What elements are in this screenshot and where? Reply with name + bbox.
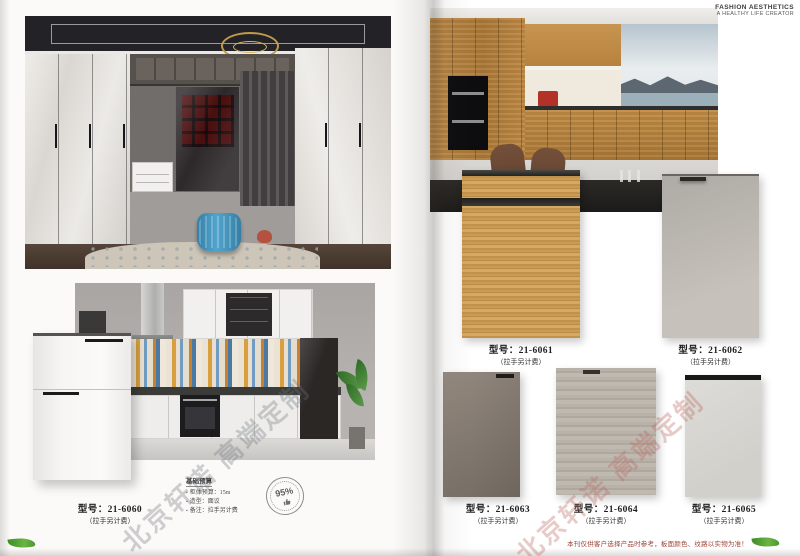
glass-shelf-lines [230,297,268,332]
swatch-21-6064 [556,368,656,495]
inset-handle [583,370,600,374]
model-number: 21-6062 [708,346,742,356]
budget-title: 基础预算 [186,475,212,487]
model-prefix: 型号： [78,505,108,515]
dark-tall-cabinet [300,338,338,439]
wardrobe-room-photo [25,16,391,269]
swatch-21-6062 [662,174,759,338]
oven-handle [183,399,217,401]
handle-rail [462,170,580,176]
glass-upper-cabinet [226,293,272,336]
window-view [621,24,718,106]
wine-glass [637,170,640,182]
model-code: 型号：21-6061 [462,342,580,356]
model-prefix: 型号： [466,505,496,515]
brand-header: FASHION AESTHETICS A HEALTHY LIFE CREATO… [715,4,794,17]
red-stool [257,230,272,243]
blue-ottoman [197,213,241,251]
model-note: （拉手另计费） [680,516,768,526]
wood-upper-cabinets [525,24,621,70]
cabinet-handle [85,339,123,342]
model-note: （拉手另计费） [556,516,656,526]
wine-glass [620,170,623,182]
model-note: （拉手另计费） [462,357,580,367]
plant-pot [349,427,365,449]
ottoman-ridges [199,216,239,248]
catalog-spread: 型号：21-6060 （拉手另计费） 基础预算 柜体预算：15m 造型：面议 备… [0,0,800,556]
swatch-21-6061 [462,170,580,338]
wardrobe-handle [359,123,361,147]
mountains [621,72,718,94]
ring-chandelier-inner [233,41,267,53]
cabinet-handle [43,392,79,395]
dark-curtain [240,71,295,206]
stamp-inner-ring [267,478,303,514]
glass-reflection [300,338,338,439]
red-appliance [538,91,558,107]
model-number: 21-6060 [108,505,142,515]
model-prefix: 型号： [678,346,708,356]
curtain-folds [240,71,295,206]
brand-slogan-1: FASHION AESTHETICS [715,4,794,11]
built-in-oven-stack [448,76,488,150]
brand-slogan-2: A HEALTHY LIFE CREATOR [715,11,794,17]
model-note: （拉手另计费） [662,357,759,367]
left-marble-wardrobe [25,54,130,246]
model-number: 21-6061 [519,346,553,356]
wardrobe-door-seams [25,54,130,246]
model-code: 型号：21-6064 [556,501,656,515]
white-dresser [132,162,173,192]
oven-handle [452,92,484,95]
wardrobe-handle [325,123,327,147]
wardrobe-handle [89,124,91,148]
wardrobe-handle [55,124,57,148]
model-note: （拉手另计费） [40,516,180,526]
model-number: 21-6064 [604,505,638,515]
model-label-21-6060: 型号：21-6060 （拉手另计费） [40,501,180,526]
model-label-21-6063: 型号：21-6063 （拉手另计费） [443,501,553,526]
model-code: 型号：21-6060 [40,501,180,515]
handle-rail [685,375,761,380]
model-code: 型号：21-6062 [662,342,759,356]
model-prefix: 型号： [489,346,519,356]
model-prefix: 型号： [692,505,722,515]
wardrobe-door-seams [295,48,391,248]
model-code: 型号：21-6065 [680,501,768,515]
inset-handle [496,374,514,378]
model-note: （拉手另计费） [443,516,553,526]
model-code: 型号：21-6063 [443,501,553,515]
cabinet-top-edge [33,333,131,336]
right-marble-wardrobe [295,48,391,248]
white-tall-cabinet-render [33,333,131,480]
dresser-drawer-lines [136,167,169,187]
upper-cabinets [183,289,313,339]
glass-display-cabinet [175,86,240,192]
ceiling-frame [51,24,365,44]
built-in-oven [180,395,220,437]
drawer-groove [462,198,580,206]
sea [621,93,718,106]
model-prefix: 型号： [574,505,604,515]
model-label-21-6065: 型号：21-6065 （拉手另计费） [680,501,768,526]
swatch-21-6063 [443,372,520,497]
oven-handle [452,120,484,123]
model-label-21-6064: 型号：21-6064 （拉手另计费） [556,501,656,526]
model-number: 21-6063 [496,505,530,515]
footer-disclaimer: 本刊仅供客户选择产品时参考，板面颜色、纹路以实物为准！ [567,538,748,548]
swatch-21-6065 [685,375,761,497]
range-hood-chimney [141,283,164,337]
oven-window [185,407,215,429]
wine-glass [628,170,631,182]
glass-reflection [176,87,239,191]
cabinet-seam [33,389,131,390]
model-label-21-6062: 型号：21-6062 （拉手另计费） [662,342,759,367]
model-number: 21-6065 [722,505,756,515]
inset-handle [680,177,706,181]
potted-plant [341,361,373,449]
model-label-21-6061: 型号：21-6061 （拉手另计费） [462,342,580,367]
wardrobe-handle [123,124,125,148]
